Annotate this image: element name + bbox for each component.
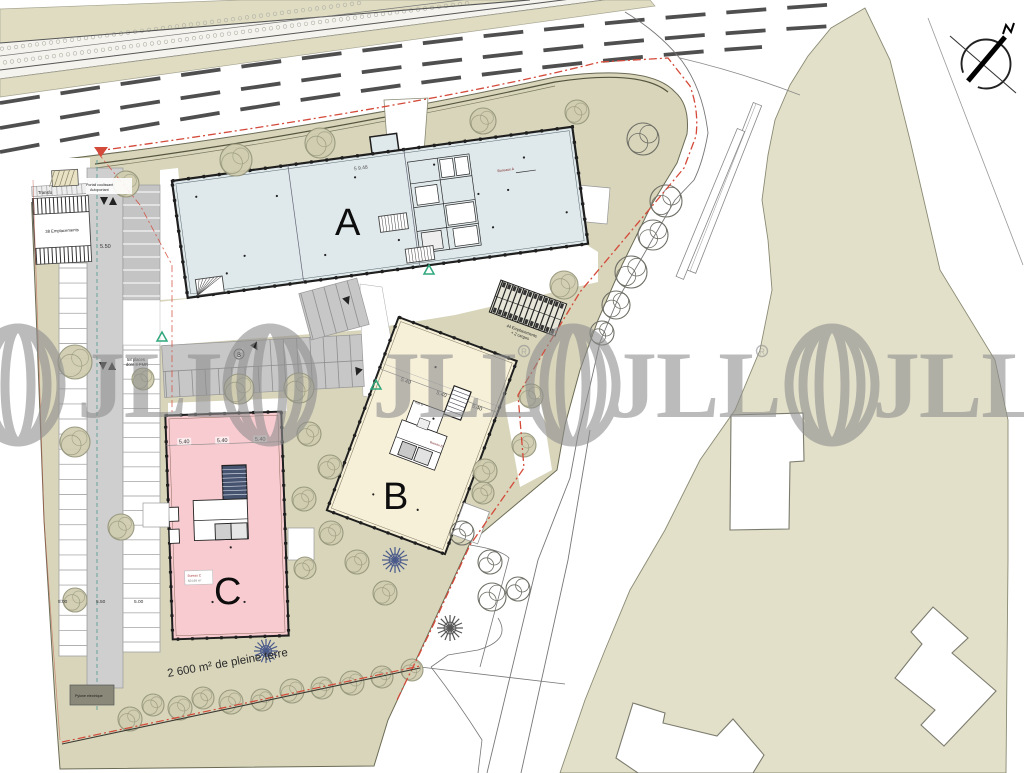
svg-text:Pylone electrique: Pylone electrique: [75, 694, 103, 698]
svg-text:5.50: 5.50: [100, 244, 111, 250]
svg-text:B: B: [383, 476, 408, 518]
svg-text:JLL: JLL: [372, 332, 543, 438]
svg-text:Autoportant: Autoportant: [90, 188, 109, 192]
svg-text:5.00: 5.00: [134, 599, 144, 605]
svg-text:R: R: [759, 348, 765, 357]
svg-text:Transfo: Transfo: [38, 190, 53, 195]
svg-text:R: R: [521, 348, 527, 357]
svg-text:C: C: [214, 571, 241, 613]
svg-text:Bureau C: Bureau C: [188, 573, 202, 577]
svg-text:5.40: 5.40: [179, 439, 190, 445]
svg-text:5.40: 5.40: [217, 438, 228, 444]
svg-text:JLL: JLL: [77, 332, 248, 438]
svg-text:JLL: JLL: [609, 332, 780, 438]
svg-text:JLL: JLL: [872, 332, 1024, 438]
svg-text:624,99 m²: 624,99 m²: [188, 578, 202, 582]
svg-text:Portail coulissant: Portail coulissant: [86, 183, 113, 187]
svg-text:5.50: 5.50: [96, 599, 106, 605]
svg-text:5.00: 5.00: [58, 599, 68, 605]
svg-text:A: A: [335, 202, 361, 244]
